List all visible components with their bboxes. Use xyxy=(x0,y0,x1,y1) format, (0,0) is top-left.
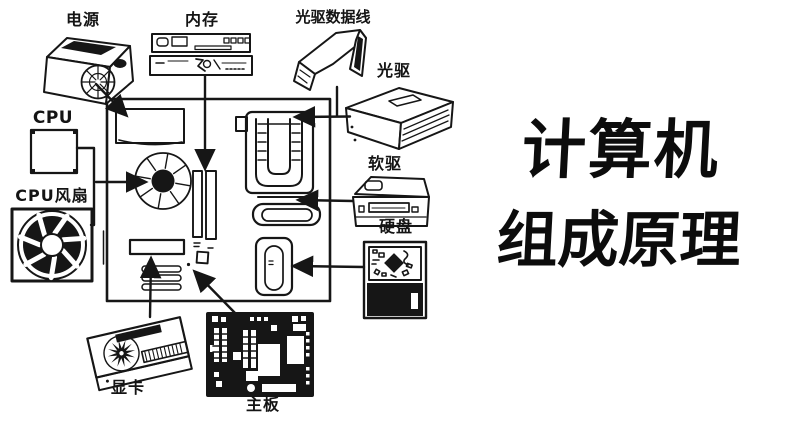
label-cpu-fan: CPU风扇 xyxy=(15,188,88,204)
optical-cable-drawing xyxy=(294,30,366,90)
ram-slots-inside xyxy=(193,171,216,248)
label-hard-disk: 硬盘 xyxy=(379,219,413,235)
ram-sticks-drawing xyxy=(150,34,252,75)
dot-motherboard xyxy=(187,263,190,266)
label-power: 电源 xyxy=(66,12,100,28)
label-floppy-drive: 软驱 xyxy=(368,156,402,172)
label-motherboard: 主板 xyxy=(246,397,280,413)
optical-drive-drawing xyxy=(346,88,453,149)
power-supply-drawing xyxy=(44,38,133,104)
computer-parts-diagram: 电源 内存 光驱数据线 光驱 CPU CPU风扇 软驱 硬盘 显卡 主板 计算机… xyxy=(0,0,800,422)
arrow-hdd xyxy=(294,266,364,267)
page-title-line2: 组成原理 xyxy=(495,210,742,271)
expansion-slots xyxy=(130,240,184,290)
arrow-optical xyxy=(296,117,350,118)
label-optical-cable: 光驱数据线 xyxy=(295,10,370,25)
connector-arrows xyxy=(77,76,364,317)
cpu-chip-drawing xyxy=(31,130,77,173)
label-optical-drive: 光驱 xyxy=(377,63,411,79)
arrow-gpu xyxy=(150,259,151,317)
hdd-bay xyxy=(256,238,292,295)
label-graphics-card: 显卡 xyxy=(111,380,145,396)
hard-disk-drawing xyxy=(364,242,426,318)
label-memory: 内存 xyxy=(185,12,219,28)
motherboard-drawing xyxy=(206,312,314,397)
page-title-line1: 计算机 xyxy=(520,119,721,183)
label-cpu: CPU xyxy=(33,110,73,127)
arrow-floppy xyxy=(299,200,353,201)
floppy-bay xyxy=(253,204,320,225)
cpu-fan-drawing xyxy=(12,209,92,281)
arrow-motherboard xyxy=(195,272,236,314)
drive-bay xyxy=(236,112,313,197)
small-chip xyxy=(197,252,209,264)
